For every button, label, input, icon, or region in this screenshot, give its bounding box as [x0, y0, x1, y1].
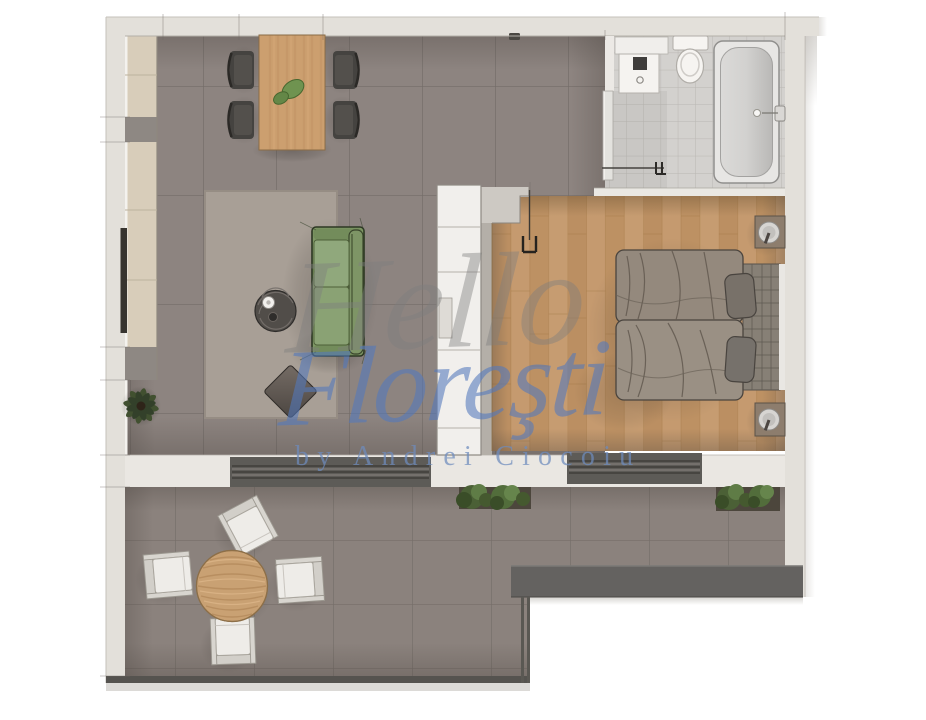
- svg-text:by Andrei Ciocoiu: by Andrei Ciocoiu: [295, 441, 641, 472]
- svg-text:Floreşti: Floreşti: [275, 316, 613, 450]
